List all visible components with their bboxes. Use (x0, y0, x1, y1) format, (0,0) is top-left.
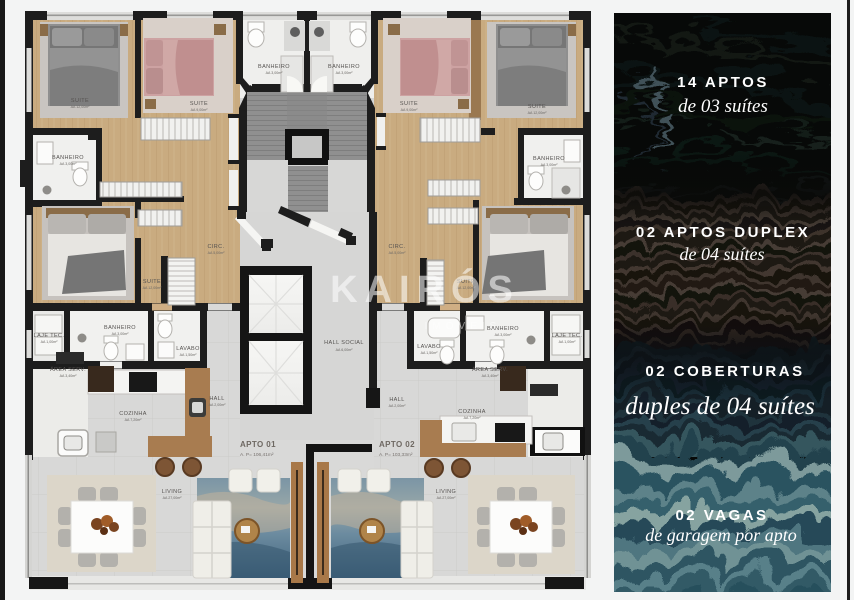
svg-text:KAIRÓS: KAIRÓS (330, 267, 520, 311)
svg-text:BANHEIRO: BANHEIRO (52, 155, 84, 161)
svg-text:A. P= 106,41m²: A. P= 106,41m² (240, 452, 274, 458)
svg-text:AA 3,00m²: AA 3,00m² (336, 71, 354, 75)
svg-text:BANHEIRO: BANHEIRO (104, 325, 136, 331)
svg-text:AA 12,00m²: AA 12,00m² (143, 286, 163, 290)
svg-text:LAJE TEC.: LAJE TEC. (34, 333, 65, 339)
svg-text:SUITE: SUITE (400, 101, 418, 107)
svg-text:LIVING: LIVING (162, 489, 182, 495)
svg-text:de 04 suítes: de 04 suítes (680, 244, 765, 264)
svg-text:SUITE: SUITE (190, 101, 208, 107)
svg-text:AA 9,00m²: AA 9,00m² (191, 108, 209, 112)
svg-text:AA 1,00m²: AA 1,00m² (559, 340, 577, 344)
svg-text:AA 1,00m²: AA 1,00m² (41, 340, 59, 344)
svg-text:AA 6,00m²: AA 6,00m² (336, 348, 354, 352)
svg-text:ÁREA SERV.: ÁREA SERV. (50, 366, 86, 373)
svg-text:de 03 suítes: de 03 suítes (678, 96, 768, 117)
svg-text:LAJE TEC.: LAJE TEC. (552, 333, 583, 339)
svg-text:BANHEIRO: BANHEIRO (258, 64, 290, 70)
svg-text:AA 3,00m²: AA 3,00m² (495, 333, 513, 337)
svg-text:LIVING: LIVING (436, 489, 456, 495)
svg-text:LAVABO: LAVABO (176, 346, 200, 352)
svg-text:AA 27,00m²: AA 27,00m² (163, 496, 183, 500)
svg-text:COZINHA: COZINHA (458, 409, 486, 415)
svg-text:02 APTOS DUPLEX: 02 APTOS DUPLEX (636, 224, 810, 241)
svg-text:AA 12,00m²: AA 12,00m² (528, 111, 548, 115)
svg-text:HALL: HALL (209, 396, 224, 402)
svg-text:APTO 02: APTO 02 (379, 440, 415, 449)
svg-text:ÁREA SERV.: ÁREA SERV. (472, 366, 508, 373)
svg-text:AA 3,40m²: AA 3,40m² (60, 374, 78, 378)
svg-text:LAVABO: LAVABO (417, 344, 441, 350)
svg-text:AA 27,00m²: AA 27,00m² (437, 496, 457, 500)
svg-text:CIRC.: CIRC. (389, 244, 406, 250)
svg-text:AA 7,20m²: AA 7,20m² (464, 416, 482, 420)
svg-text:AA 1,50m²: AA 1,50m² (180, 353, 198, 357)
svg-text:CIRC.: CIRC. (208, 244, 225, 250)
svg-text:HALL SOCIAL: HALL SOCIAL (324, 340, 364, 346)
svg-text:02 COBERTURAS: 02 COBERTURAS (645, 363, 804, 380)
svg-text:AA 5,00m²: AA 5,00m² (389, 251, 407, 255)
svg-text:AA 9,00m²: AA 9,00m² (401, 108, 419, 112)
svg-text:AA 3,00m²: AA 3,00m² (112, 332, 130, 336)
svg-text:de garagem por apto: de garagem por apto (645, 525, 797, 545)
svg-text:AA 2,00m²: AA 2,00m² (209, 403, 227, 407)
svg-text:AA 5,00m²: AA 5,00m² (208, 251, 226, 255)
svg-text:BANHEIRO: BANHEIRO (328, 64, 360, 70)
svg-text:AA 12,00m²: AA 12,00m² (71, 105, 91, 109)
svg-text:duples de 04 suítes: duples de 04 suítes (625, 393, 815, 420)
svg-text:SUITE: SUITE (71, 98, 89, 104)
svg-text:APTO 01: APTO 01 (240, 440, 276, 449)
svg-text:SUITE: SUITE (143, 279, 161, 285)
svg-text:AA 1,50m²: AA 1,50m² (421, 351, 439, 355)
svg-text:AA 7,20m²: AA 7,20m² (125, 418, 143, 422)
svg-text:HALL: HALL (389, 397, 404, 403)
svg-text:AA 3,00m²: AA 3,00m² (266, 71, 284, 75)
svg-text:AA 3,00m²: AA 3,00m² (60, 162, 78, 166)
svg-text:IMÓVEIS: IMÓVEIS (425, 319, 502, 332)
svg-text:AA 3,00m²: AA 3,00m² (541, 163, 559, 167)
svg-text:COZINHA: COZINHA (119, 411, 147, 417)
svg-text:02 VAGAS: 02 VAGAS (675, 507, 768, 524)
svg-text:SUITE: SUITE (528, 104, 546, 110)
svg-text:AA 2,00m²: AA 2,00m² (389, 404, 407, 408)
svg-text:14 APTOS: 14 APTOS (677, 74, 769, 91)
svg-text:A. P= 103,33m²: A. P= 103,33m² (379, 452, 413, 458)
svg-text:AA 3,40m²: AA 3,40m² (482, 374, 500, 378)
svg-text:BANHEIRO: BANHEIRO (533, 156, 565, 162)
